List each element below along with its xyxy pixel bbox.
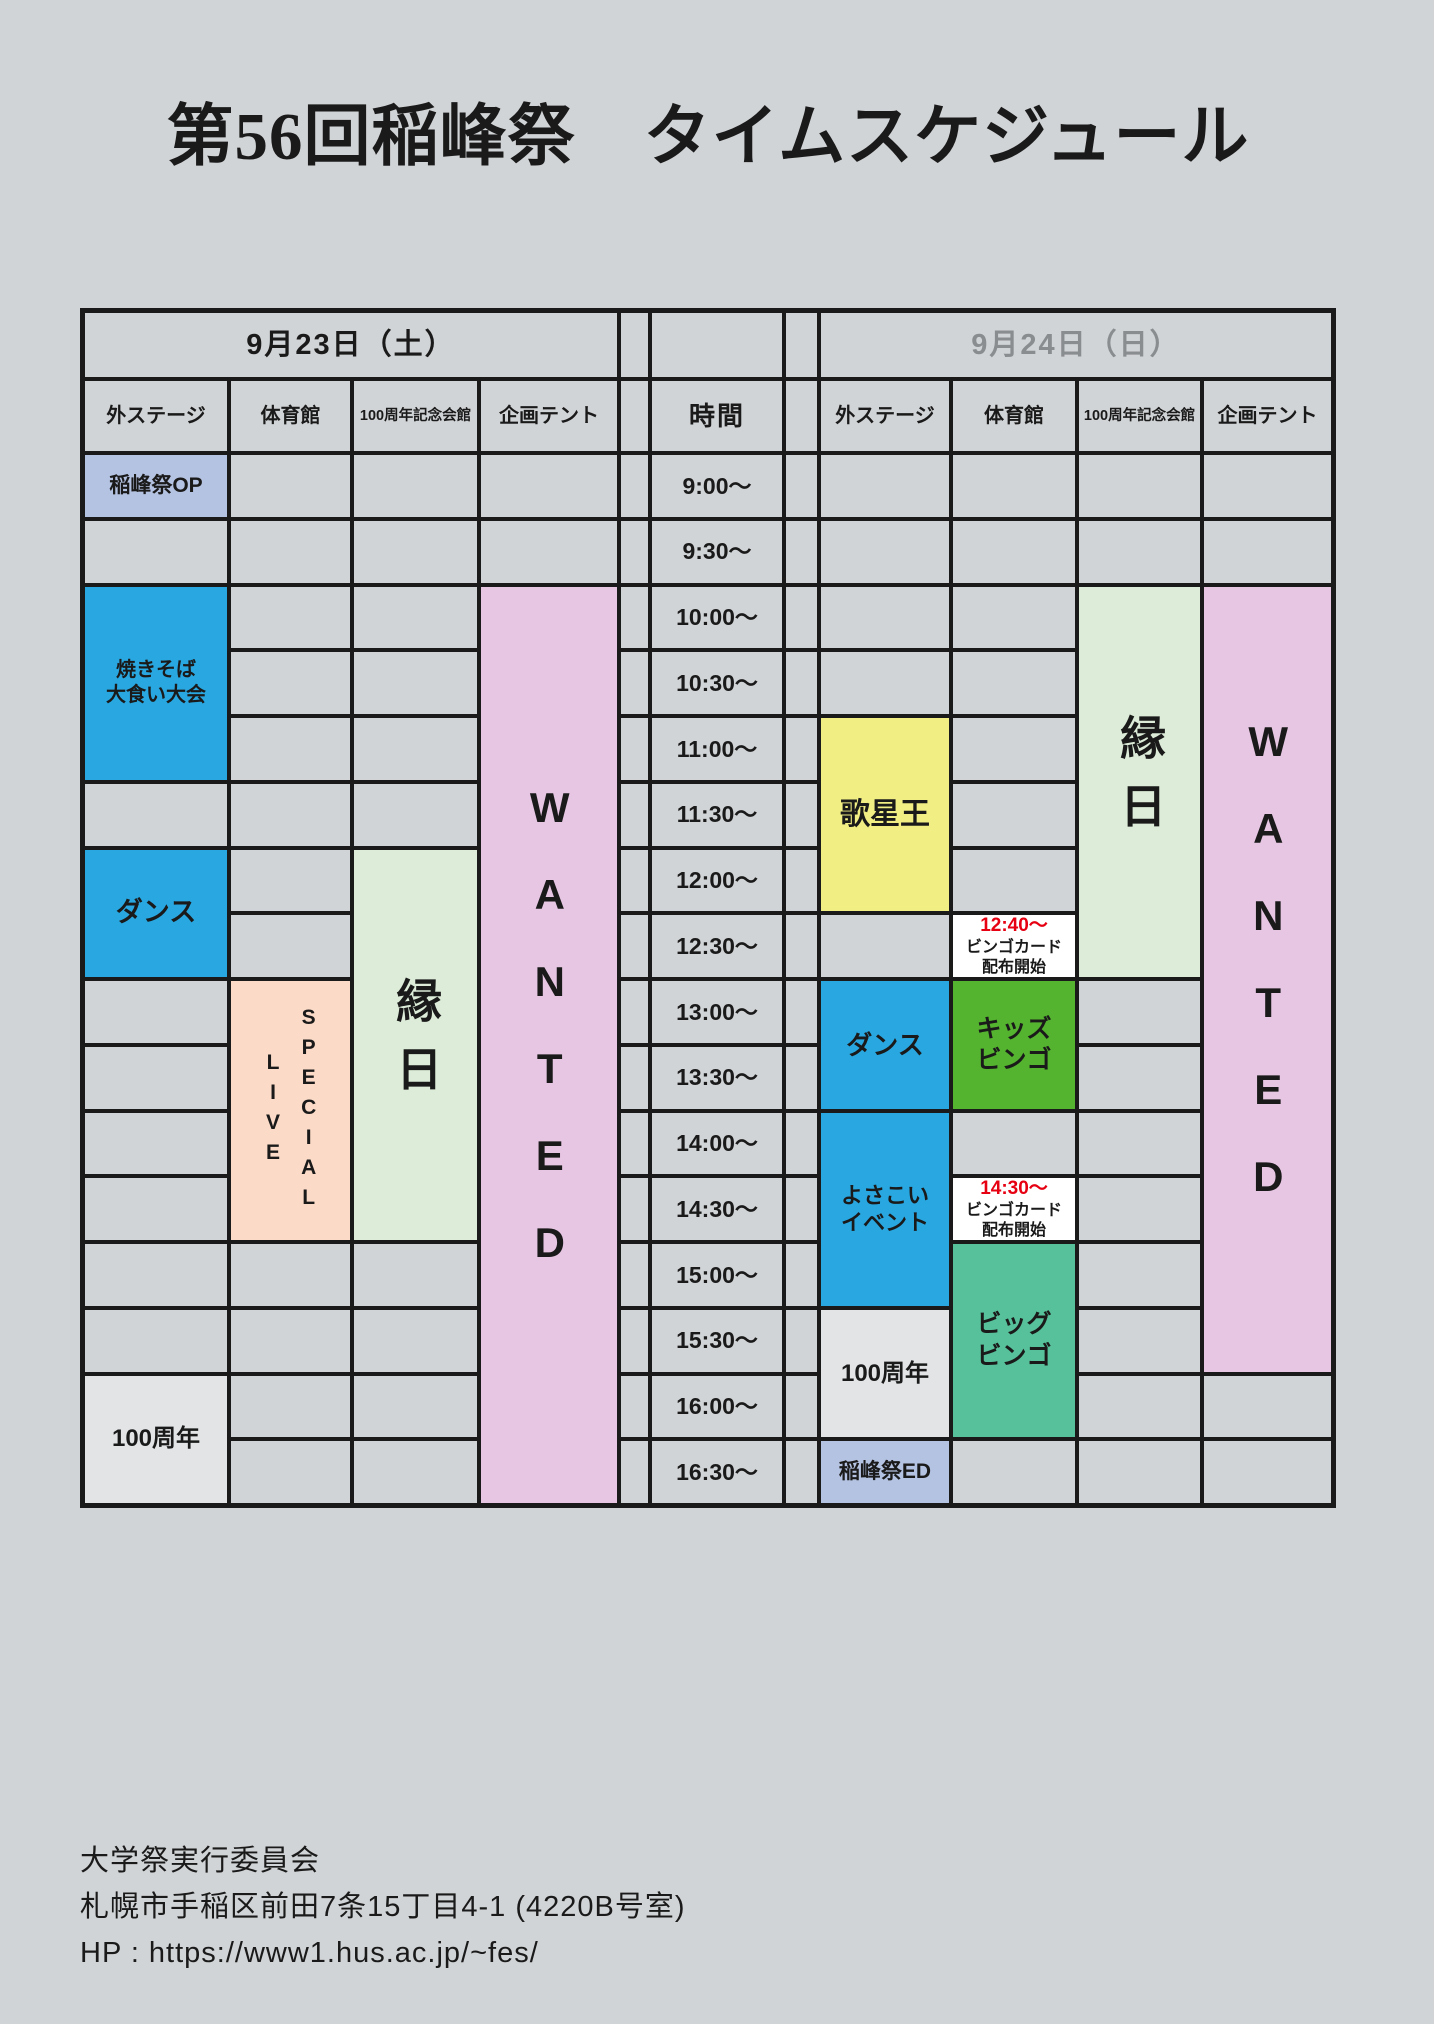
spacer-cell: [786, 1310, 817, 1372]
empty-cell: [354, 652, 477, 714]
event-special-live: SPECIALLIVE: [231, 981, 350, 1240]
spacer-cell: [786, 1376, 817, 1438]
empty-cell: [1204, 1376, 1331, 1438]
venue-header-sun-0: 外ステージ: [821, 381, 949, 451]
time-column-top-cell: [652, 313, 782, 377]
empty-cell: [354, 718, 477, 780]
event-ennichi-sat: 縁日: [354, 850, 477, 1241]
page-title: 第56回稲峰祭 タイムスケジュール: [80, 82, 1336, 179]
spacer-cell: [621, 587, 648, 649]
empty-cell: [953, 587, 1075, 649]
date-header-sat: 9月23日（土）: [85, 313, 617, 377]
event-100th-sat: 100周年: [85, 1376, 227, 1504]
empty-cell: [1204, 521, 1331, 583]
empty-cell: [821, 521, 949, 583]
time-cell-15: 16:30～: [652, 1441, 782, 1503]
spacer-cell: [786, 1441, 817, 1503]
spacer-cell: [621, 1244, 648, 1306]
spacer-cell: [621, 521, 648, 583]
spacer-cell: [621, 1441, 648, 1503]
empty-cell: [821, 587, 949, 649]
spacer-cell: [621, 718, 648, 780]
empty-cell: [231, 718, 350, 780]
spacer-cell: [786, 1047, 817, 1109]
empty-cell: [821, 915, 949, 977]
empty-cell: [821, 652, 949, 714]
empty-cell: [231, 652, 350, 714]
event-kids-bingo: キッズビンゴ: [953, 981, 1075, 1109]
empty-cell: [953, 455, 1075, 517]
empty-cell: [354, 1310, 477, 1372]
empty-cell: [231, 1244, 350, 1306]
spacer-cell: [786, 1178, 817, 1240]
empty-cell: [354, 587, 477, 649]
footer: 大学祭実行委員会 札幌市手稲区前田7条15丁目4-1 (4220B号室) HP …: [80, 1838, 686, 1976]
venue-header-sun-1: 体育館: [953, 381, 1075, 451]
empty-cell: [231, 455, 350, 517]
time-cell-10: 14:00～: [652, 1113, 782, 1175]
spacer-cell: [786, 981, 817, 1043]
empty-cell: [85, 1113, 227, 1175]
empty-cell: [85, 1244, 227, 1306]
event-dance-sat: ダンス: [85, 850, 227, 978]
spacer-cell: [621, 1047, 648, 1109]
spacer-cell: [786, 313, 817, 377]
time-cell-8: 13:00～: [652, 981, 782, 1043]
empty-cell: [354, 1441, 477, 1503]
footer-organizer: 大学祭実行委員会: [80, 1838, 686, 1884]
time-cell-5: 11:30～: [652, 784, 782, 846]
spacer-cell: [621, 915, 648, 977]
time-cell-14: 16:00～: [652, 1376, 782, 1438]
empty-cell: [1079, 1178, 1200, 1240]
time-cell-4: 11:00～: [652, 718, 782, 780]
empty-cell: [1204, 455, 1331, 517]
footer-address: 札幌市手稲区前田7条15丁目4-1 (4220B号室): [80, 1884, 686, 1930]
spacer-cell: [786, 521, 817, 583]
empty-cell: [354, 784, 477, 846]
empty-cell: [481, 521, 617, 583]
venue-header-sat-0: 外ステージ: [85, 381, 227, 451]
spacer-cell: [786, 587, 817, 649]
spacer-cell: [621, 850, 648, 912]
event-utaseio: 歌星王: [821, 718, 949, 911]
empty-cell: [953, 850, 1075, 912]
empty-cell: [231, 521, 350, 583]
spacer-cell: [786, 1244, 817, 1306]
spacer-cell: [621, 652, 648, 714]
empty-cell: [1204, 1441, 1331, 1503]
empty-cell: [1079, 1310, 1200, 1372]
empty-cell: [231, 850, 350, 912]
empty-cell: [231, 915, 350, 977]
empty-cell: [231, 1441, 350, 1503]
empty-cell: [1079, 981, 1200, 1043]
spacer-cell: [621, 313, 648, 377]
event-inamine-op: 稲峰祭OP: [85, 455, 227, 517]
event-bingo-card-1430: 14:30～ビンゴカード配布開始: [953, 1178, 1075, 1240]
spacer-cell: [621, 455, 648, 517]
event-bingo-card-1240: 12:40～ビンゴカード配布開始: [953, 915, 1075, 977]
empty-cell: [821, 455, 949, 517]
empty-cell: [231, 784, 350, 846]
time-cell-11: 14:30～: [652, 1178, 782, 1240]
empty-cell: [1079, 1244, 1200, 1306]
event-wanted-sat: WANTED: [481, 587, 617, 1504]
time-cell-0: 9:00～: [652, 455, 782, 517]
venue-header-sat-2: 100周年記念会館: [354, 381, 477, 451]
spacer-cell: [621, 981, 648, 1043]
spacer-cell: [786, 1113, 817, 1175]
event-bingo-card-1430-time: 14:30～: [980, 1178, 1048, 1201]
spacer-cell: [786, 784, 817, 846]
empty-cell: [481, 455, 617, 517]
spacer-cell: [621, 1113, 648, 1175]
time-cell-9: 13:30～: [652, 1047, 782, 1109]
empty-cell: [85, 1047, 227, 1109]
empty-cell: [354, 455, 477, 517]
empty-cell: [953, 1113, 1075, 1175]
spacer-cell: [621, 1310, 648, 1372]
spacer-cell: [786, 915, 817, 977]
spacer-cell: [786, 718, 817, 780]
empty-cell: [953, 718, 1075, 780]
spacer-cell: [621, 381, 648, 451]
time-cell-3: 10:30～: [652, 652, 782, 714]
empty-cell: [85, 1178, 227, 1240]
spacer-cell: [786, 850, 817, 912]
event-yakisoba-contest: 焼きそば大食い大会: [85, 587, 227, 780]
time-cell-13: 15:30～: [652, 1310, 782, 1372]
event-bingo-card-1240-time: 12:40～: [980, 915, 1048, 938]
spacer-cell: [786, 381, 817, 451]
venue-header-sat-3: 企画テント: [481, 381, 617, 451]
empty-cell: [354, 521, 477, 583]
time-cell-7: 12:30～: [652, 915, 782, 977]
spacer-cell: [786, 455, 817, 517]
date-header-sun: 9月24日（日）: [821, 313, 1331, 377]
event-inamine-ed: 稲峰祭ED: [821, 1441, 949, 1503]
event-dance-sun: ダンス: [821, 981, 949, 1109]
empty-cell: [85, 784, 227, 846]
empty-cell: [953, 784, 1075, 846]
empty-cell: [1079, 521, 1200, 583]
event-100th-sun: 100周年: [821, 1310, 949, 1438]
event-big-bingo: ビッグビンゴ: [953, 1244, 1075, 1437]
spacer-cell: [786, 652, 817, 714]
spacer-cell: [621, 1376, 648, 1438]
event-wanted-sun: WANTED: [1204, 587, 1331, 1372]
venue-header-sat-1: 体育館: [231, 381, 350, 451]
time-cell-1: 9:30～: [652, 521, 782, 583]
empty-cell: [354, 1244, 477, 1306]
empty-cell: [354, 1376, 477, 1438]
empty-cell: [85, 521, 227, 583]
time-cell-6: 12:00～: [652, 850, 782, 912]
empty-cell: [1079, 455, 1200, 517]
empty-cell: [953, 521, 1075, 583]
schedule-table: 9月23日（土）9月24日（日）外ステージ体育館100周年記念会館企画テント時間…: [80, 308, 1336, 1508]
empty-cell: [953, 652, 1075, 714]
time-header: 時間: [652, 381, 782, 451]
empty-cell: [953, 1441, 1075, 1503]
time-cell-12: 15:00～: [652, 1244, 782, 1306]
empty-cell: [1079, 1441, 1200, 1503]
empty-cell: [1079, 1376, 1200, 1438]
poster-page: 第56回稲峰祭 タイムスケジュール 9月23日（土）9月24日（日）外ステージ体…: [0, 0, 1434, 2024]
spacer-cell: [621, 1178, 648, 1240]
event-ennichi-sun: 縁日: [1079, 587, 1200, 978]
venue-header-sun-3: 企画テント: [1204, 381, 1331, 451]
empty-cell: [1079, 1113, 1200, 1175]
empty-cell: [231, 1376, 350, 1438]
footer-url: HP : https://www1.hus.ac.jp/~fes/: [80, 1930, 686, 1976]
empty-cell: [231, 587, 350, 649]
spacer-cell: [621, 784, 648, 846]
empty-cell: [85, 1310, 227, 1372]
empty-cell: [1079, 1047, 1200, 1109]
venue-header-sun-2: 100周年記念会館: [1079, 381, 1200, 451]
empty-cell: [231, 1310, 350, 1372]
time-cell-2: 10:00～: [652, 587, 782, 649]
empty-cell: [85, 981, 227, 1043]
event-yosakoi-event: よさこいイベント: [821, 1113, 949, 1306]
